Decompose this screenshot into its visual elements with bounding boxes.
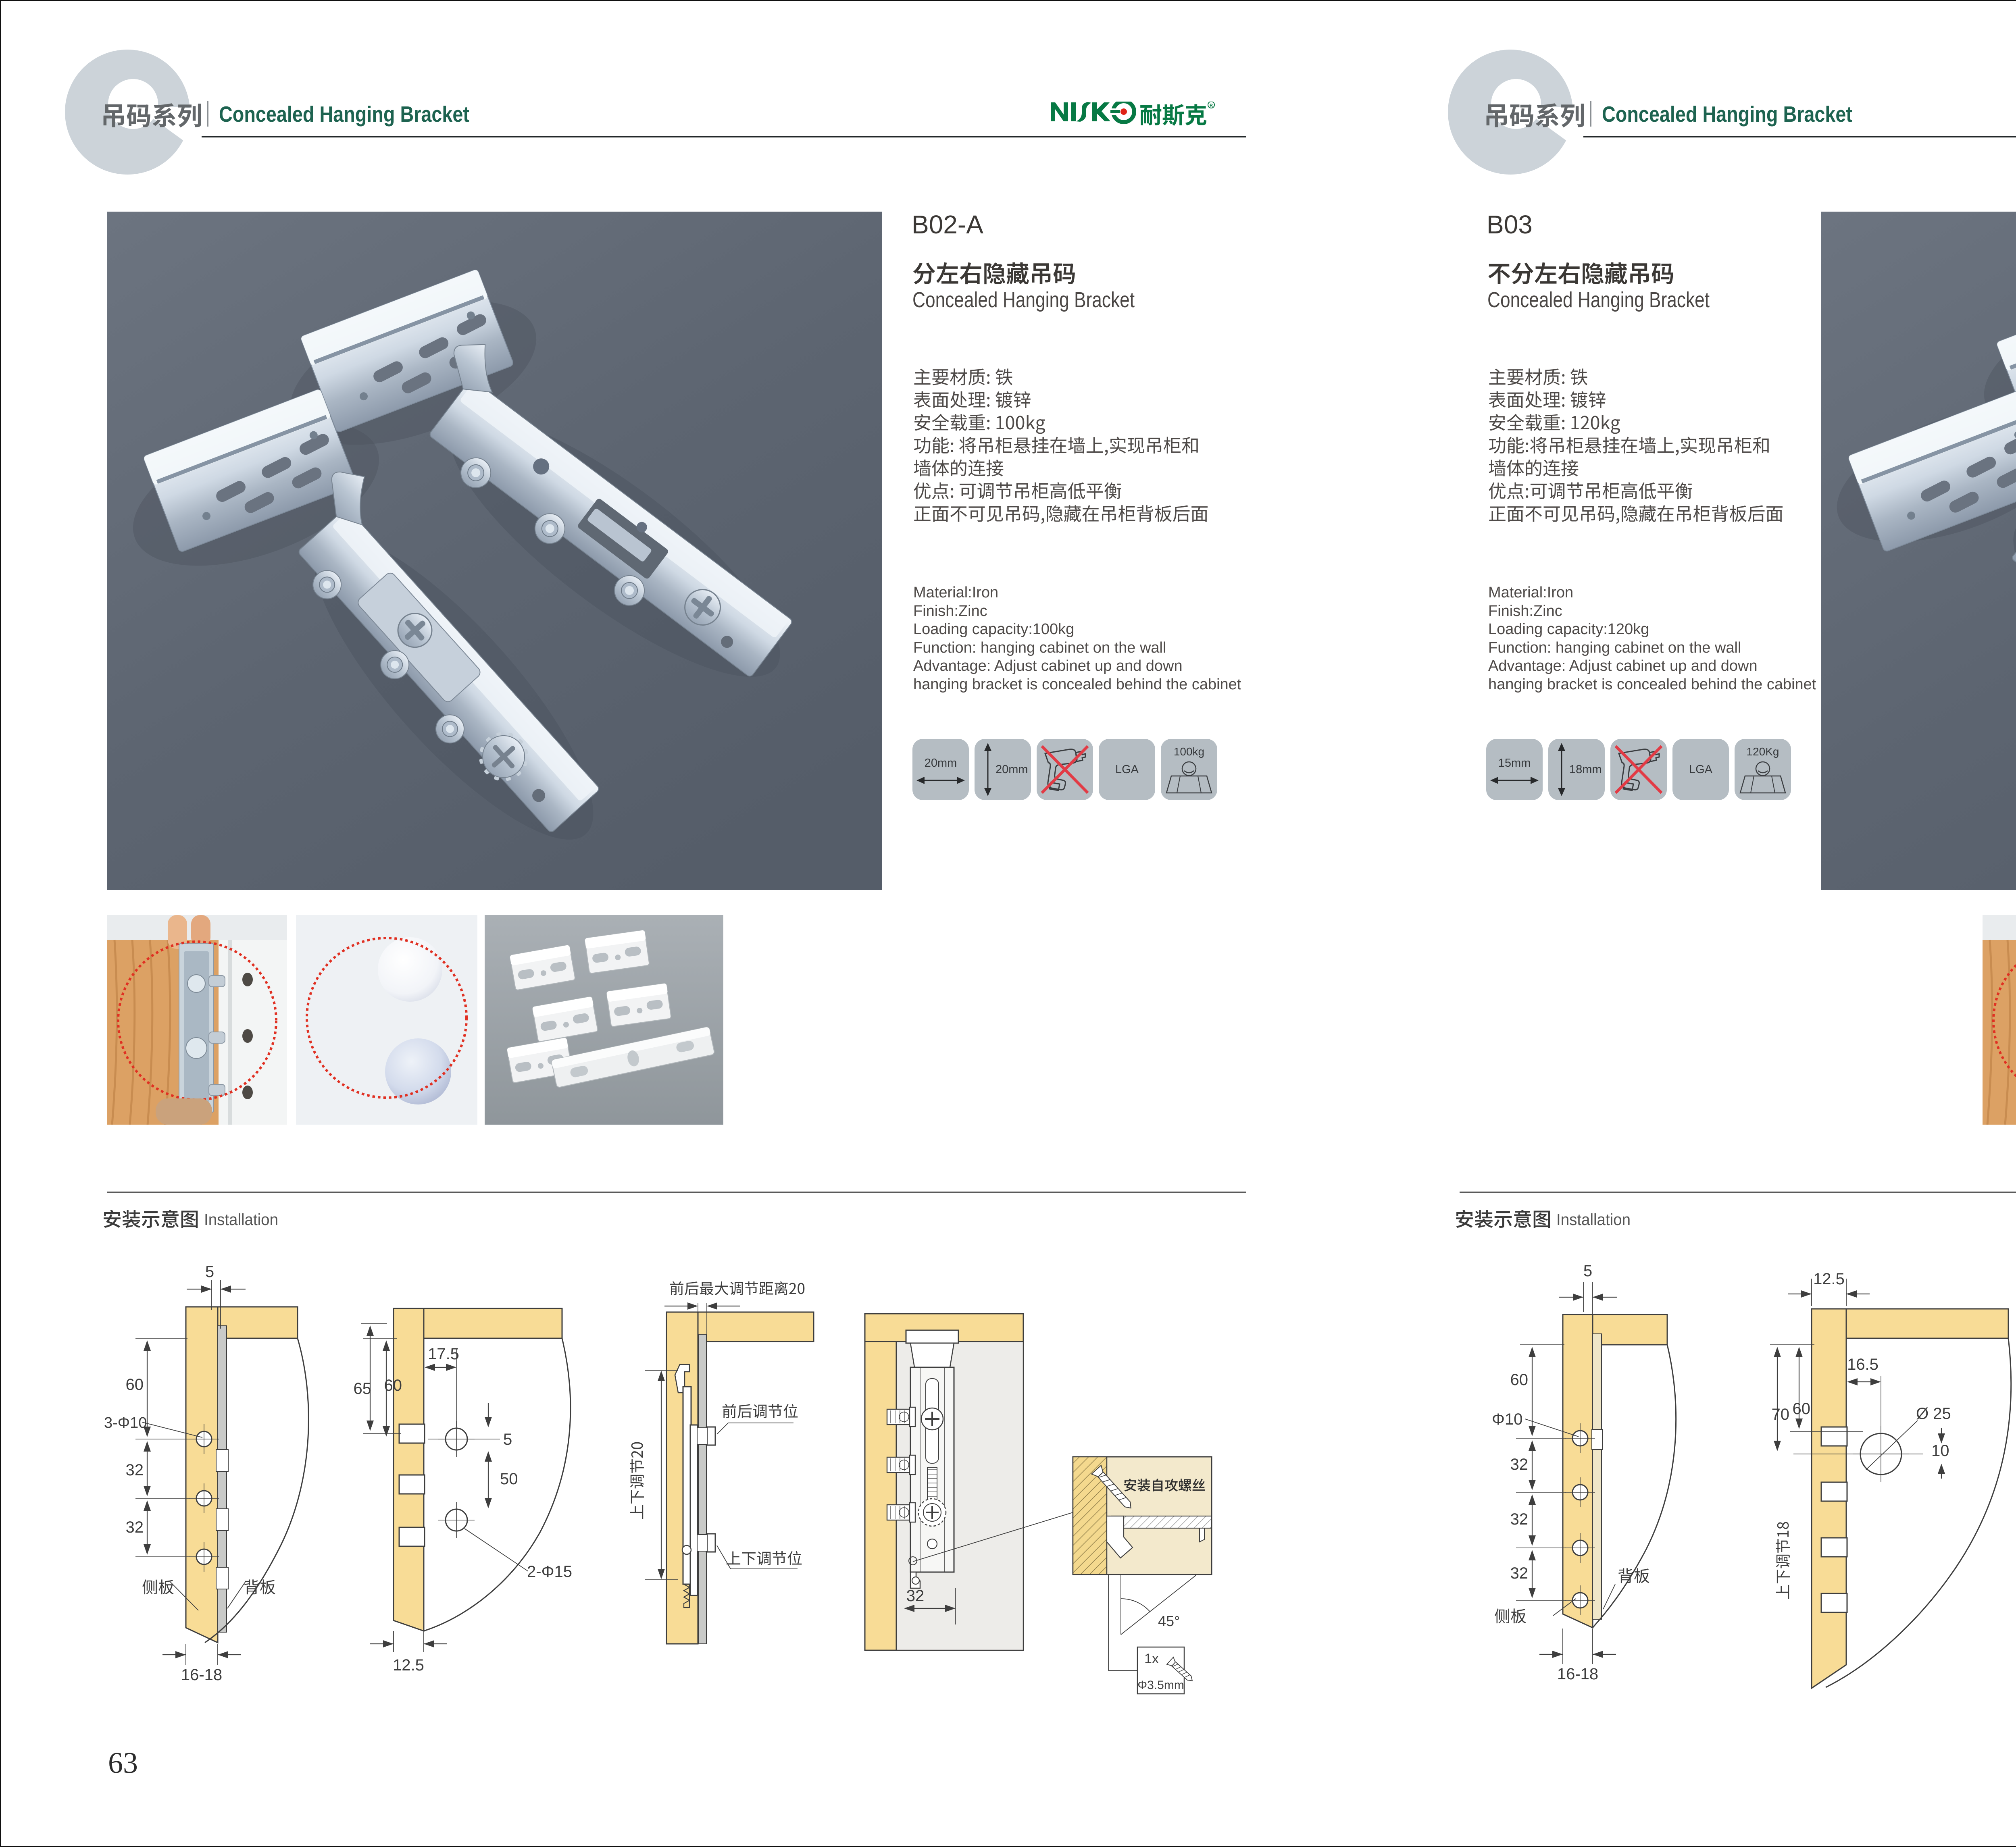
svg-text:60: 60 bbox=[1793, 1400, 1811, 1418]
svg-text:60: 60 bbox=[384, 1377, 402, 1394]
svg-text:5: 5 bbox=[503, 1431, 512, 1448]
svg-text:32: 32 bbox=[1510, 1564, 1529, 1582]
svg-text:32: 32 bbox=[906, 1587, 925, 1605]
svg-text:17.5: 17.5 bbox=[428, 1345, 459, 1363]
svg-text:Installation: Installation bbox=[1556, 1211, 1631, 1229]
svg-text:Ø 25: Ø 25 bbox=[1916, 1405, 1951, 1423]
svg-text:5: 5 bbox=[1583, 1262, 1592, 1280]
svg-text:R: R bbox=[1210, 103, 1213, 108]
svg-text:12.5: 12.5 bbox=[1813, 1270, 1845, 1288]
svg-text:Concealed Hanging Bracket: Concealed Hanging Bracket bbox=[912, 288, 1135, 312]
svg-text:16-18: 16-18 bbox=[181, 1666, 222, 1684]
svg-text:5: 5 bbox=[205, 1263, 214, 1281]
svg-text:12.5: 12.5 bbox=[393, 1656, 424, 1674]
svg-text:Φ3.5mm: Φ3.5mm bbox=[1137, 1679, 1184, 1692]
svg-text:50: 50 bbox=[500, 1470, 518, 1488]
svg-text:3-Φ10: 3-Φ10 bbox=[104, 1414, 147, 1431]
svg-text:Concealed Hanging Bracket: Concealed Hanging Bracket bbox=[1487, 288, 1710, 312]
svg-text:10: 10 bbox=[1931, 1442, 1949, 1460]
svg-text:70: 70 bbox=[1772, 1406, 1790, 1423]
svg-text:60: 60 bbox=[126, 1376, 144, 1394]
svg-text:45°: 45° bbox=[1158, 1613, 1180, 1629]
svg-text:Φ10: Φ10 bbox=[1492, 1410, 1522, 1428]
svg-text:Concealed Hanging Bracket: Concealed Hanging Bracket bbox=[1602, 102, 1852, 127]
svg-text:65: 65 bbox=[354, 1380, 372, 1398]
svg-text:16-18: 16-18 bbox=[1557, 1665, 1598, 1683]
svg-text:1x: 1x bbox=[1144, 1651, 1159, 1666]
svg-text:16.5: 16.5 bbox=[1847, 1356, 1879, 1373]
svg-text:2-Φ15: 2-Φ15 bbox=[527, 1563, 572, 1581]
svg-text:32: 32 bbox=[126, 1461, 144, 1479]
svg-text:32: 32 bbox=[1510, 1456, 1529, 1473]
svg-text:32: 32 bbox=[126, 1518, 144, 1536]
svg-text:32: 32 bbox=[1510, 1510, 1529, 1528]
svg-text:Concealed Hanging Bracket: Concealed Hanging Bracket bbox=[219, 102, 469, 127]
svg-text:60: 60 bbox=[1510, 1371, 1529, 1389]
svg-text:Installation: Installation bbox=[204, 1211, 278, 1229]
